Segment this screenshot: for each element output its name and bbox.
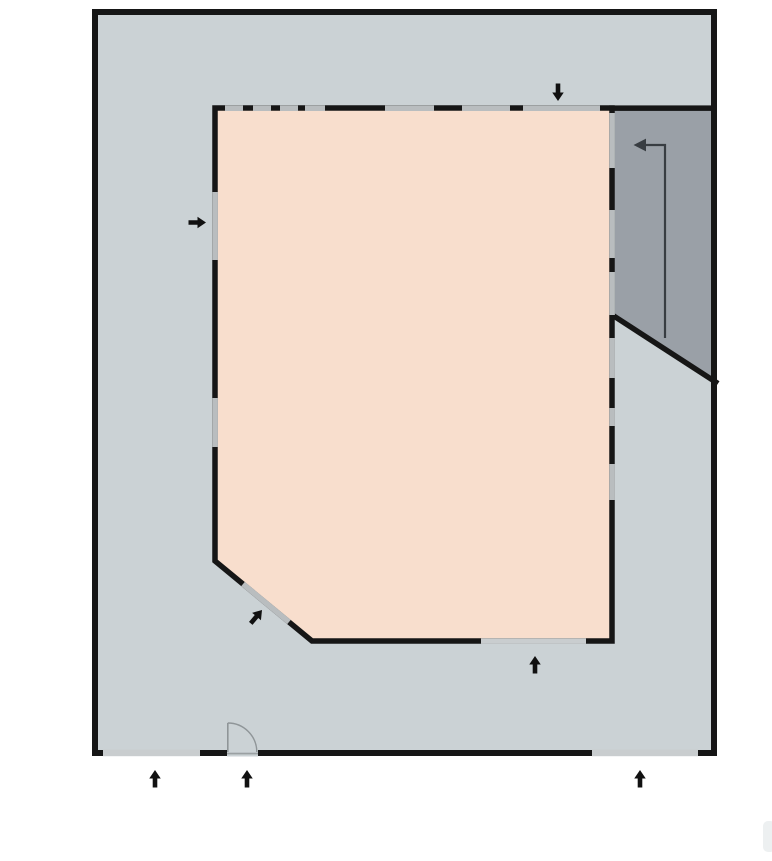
entrance-arrow-bottom-2 [241, 770, 253, 788]
window-right-14 [609, 464, 615, 500]
window-left-8 [212, 398, 218, 447]
window-top-2 [280, 105, 298, 111]
site-window-0 [103, 750, 200, 757]
screen-edge-artifact [763, 821, 772, 852]
window-bottom-15 [481, 638, 586, 644]
window-left-7 [212, 192, 218, 260]
window-right-9 [609, 113, 615, 168]
site-window-1 [592, 750, 698, 757]
floor-plan-canvas [0, 0, 772, 861]
window-top-0 [225, 105, 243, 111]
entrance-arrow-bottom-3 [634, 770, 646, 788]
floor-plan-page [0, 0, 772, 861]
window-top-4 [385, 105, 434, 111]
window-right-11 [609, 272, 615, 315]
main-entrance-threshold [227, 753, 258, 755]
window-right-10 [609, 210, 615, 258]
window-top-5 [462, 105, 510, 111]
room-ramp-divider-wall [609, 105, 711, 111]
window-top-1 [253, 105, 271, 111]
main-room [215, 108, 612, 641]
window-right-12 [609, 338, 615, 378]
window-top-6 [523, 105, 600, 111]
window-right-13 [609, 408, 615, 426]
entrance-arrow-bottom-1 [149, 770, 161, 788]
window-top-3 [305, 105, 325, 111]
